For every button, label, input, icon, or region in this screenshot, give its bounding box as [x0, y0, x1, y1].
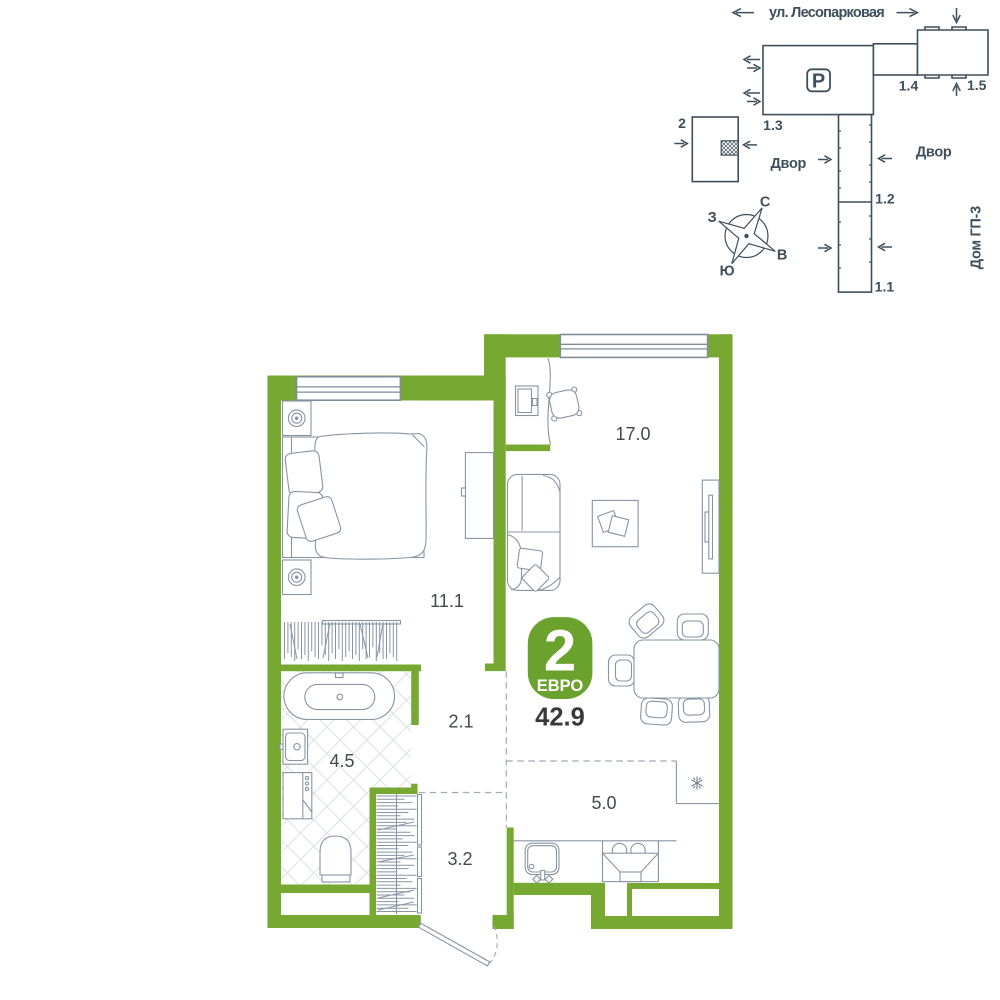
- svg-text:З: З: [708, 210, 717, 226]
- svg-text:17.0: 17.0: [615, 424, 650, 444]
- svg-text:1.1: 1.1: [875, 279, 895, 295]
- svg-text:ЕВРО: ЕВРО: [537, 677, 584, 695]
- svg-text:2: 2: [678, 115, 686, 131]
- svg-text:1.4: 1.4: [899, 78, 919, 94]
- svg-text:Двор: Двор: [916, 145, 952, 161]
- svg-text:ул. Лесопарковая: ул. Лесопарковая: [769, 5, 884, 21]
- svg-text:Дом ГП-3: Дом ГП-3: [969, 206, 985, 269]
- svg-text:1.2: 1.2: [875, 191, 895, 207]
- svg-text:Р: Р: [812, 71, 825, 93]
- svg-text:1.5: 1.5: [967, 77, 987, 93]
- svg-text:3.2: 3.2: [447, 849, 472, 869]
- svg-text:С: С: [760, 195, 771, 211]
- svg-text:Двор: Двор: [771, 156, 807, 172]
- svg-text:2.1: 2.1: [448, 712, 473, 732]
- svg-text:11.1: 11.1: [430, 591, 464, 611]
- svg-text:2: 2: [544, 619, 576, 684]
- svg-text:Ю: Ю: [720, 264, 735, 280]
- svg-text:1.3: 1.3: [763, 117, 783, 133]
- svg-text:5.0: 5.0: [591, 793, 616, 813]
- svg-text:В: В: [777, 248, 787, 264]
- svg-text:4.5: 4.5: [329, 751, 354, 771]
- svg-text:42.9: 42.9: [535, 704, 585, 732]
